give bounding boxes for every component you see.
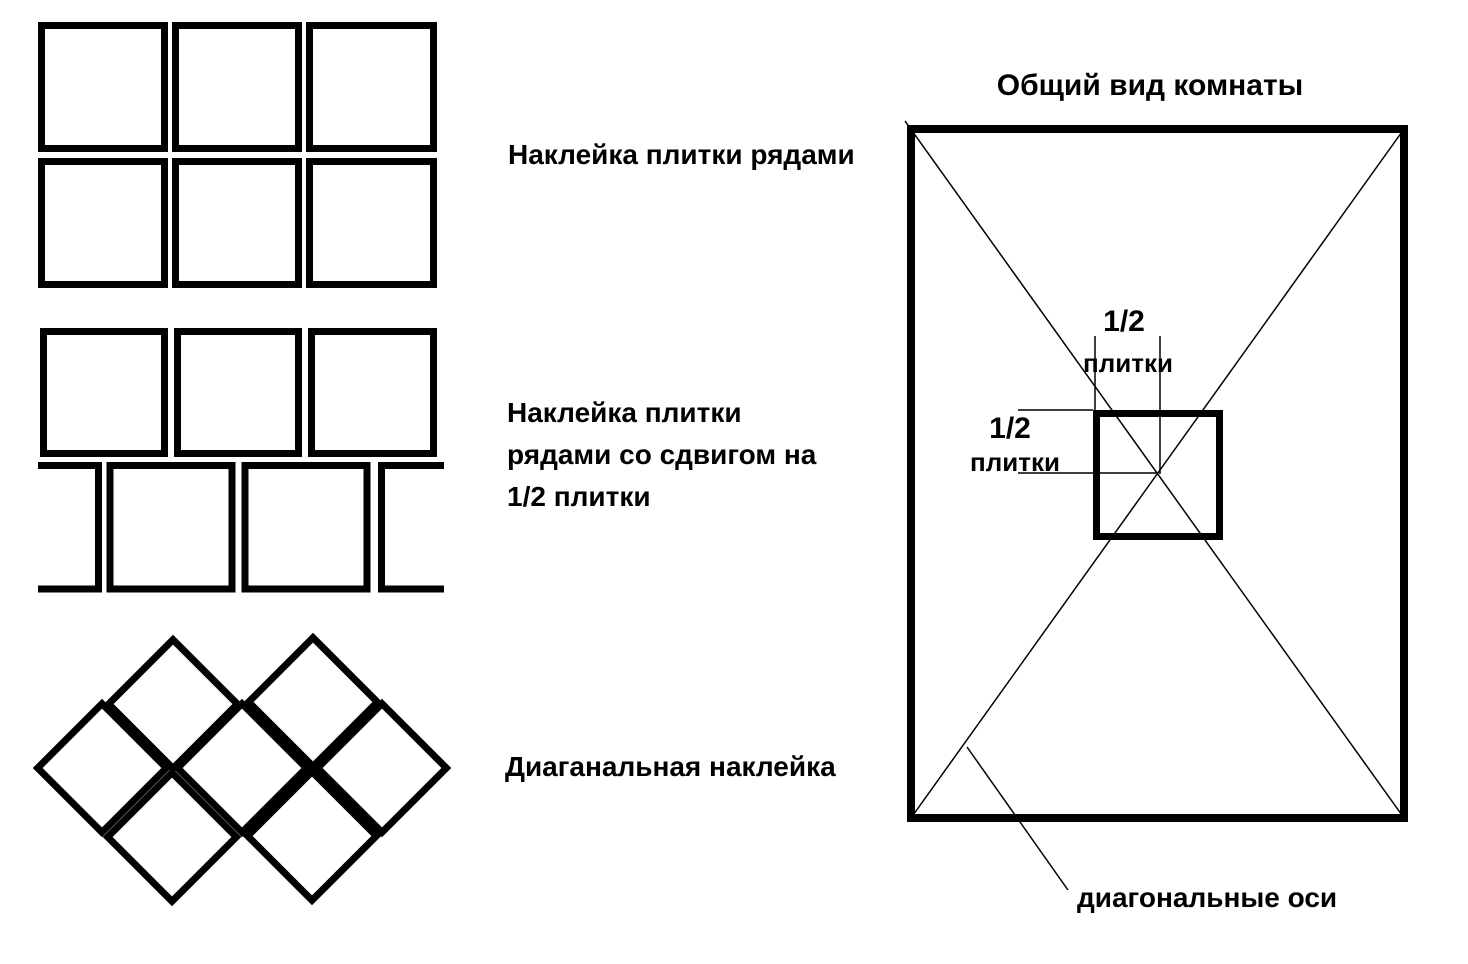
- tile: [178, 332, 299, 454]
- tile: [176, 26, 299, 149]
- pattern-offset-label-line2: рядами со сдвигом на: [507, 439, 817, 470]
- tile: [312, 332, 434, 454]
- tile-diamond: [249, 638, 378, 767]
- tile-partial-right: [382, 466, 445, 590]
- tile-laying-diagram: Наклейка плитки рядами Наклейка плитки р…: [0, 0, 1468, 964]
- half-tile-left-value: 1/2: [989, 412, 1031, 445]
- room-title: Общий вид комнаты: [997, 69, 1304, 102]
- room-diagram: [905, 121, 1404, 890]
- tile: [44, 332, 165, 454]
- pattern-rows-offset-half: [38, 332, 444, 590]
- tile-diamond: [248, 772, 377, 901]
- tile: [310, 162, 434, 285]
- half-tile-top-unit: плитки: [1083, 348, 1173, 378]
- tile: [110, 466, 232, 590]
- half-tile-top-value: 1/2: [1103, 305, 1145, 338]
- pattern-diagonal: [38, 638, 447, 902]
- tile-diamond: [108, 773, 237, 902]
- half-tile-left-unit: плитки: [970, 447, 1060, 477]
- pattern-rows-label: Наклейка плитки рядами: [508, 139, 855, 170]
- tile: [310, 26, 434, 149]
- diagram-canvas: Наклейка плитки рядами Наклейка плитки р…: [0, 0, 1468, 964]
- tile: [245, 466, 367, 590]
- pattern-offset-label-line3: 1/2 плитки: [507, 481, 651, 512]
- tile-diamond: [38, 704, 167, 833]
- tile: [42, 26, 165, 149]
- tile-diamond: [109, 640, 238, 769]
- tile: [42, 162, 165, 285]
- tile-partial-left: [38, 466, 99, 590]
- pattern-offset-label-line1: Наклейка плитки: [507, 397, 742, 428]
- diagonal-axes-label: диагональные оси: [1077, 882, 1337, 913]
- tile-diamond: [318, 704, 447, 833]
- tile: [176, 162, 299, 285]
- tile-diamond: [178, 704, 307, 833]
- pattern-diagonal-label: Диаганальная наклейка: [505, 751, 836, 782]
- pattern-rows: [42, 26, 434, 285]
